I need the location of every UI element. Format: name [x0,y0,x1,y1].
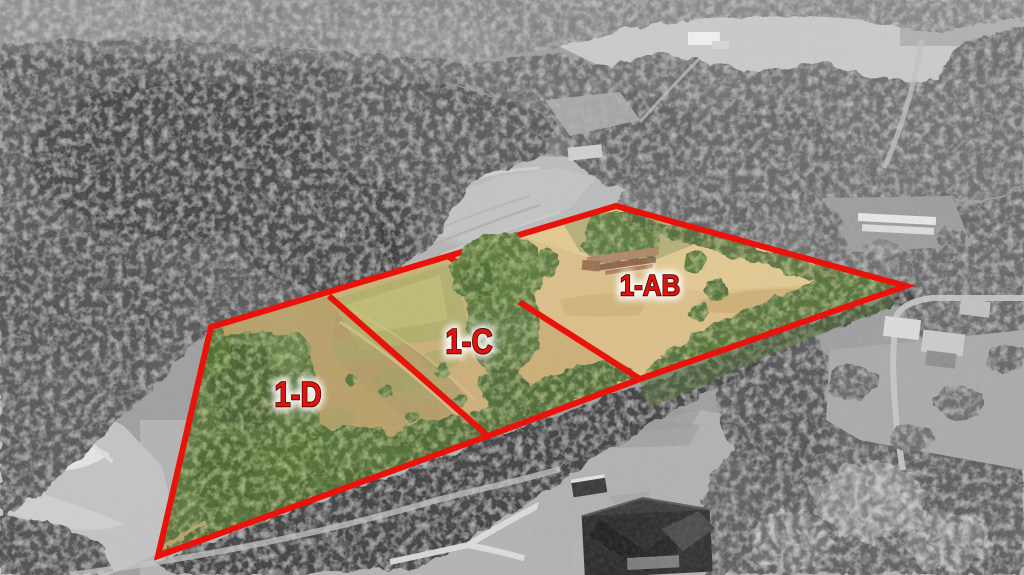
svg-text:1-D: 1-D [274,375,321,414]
svg-text:1-AB: 1-AB [620,269,681,302]
svg-text:1-C: 1-C [445,322,492,361]
